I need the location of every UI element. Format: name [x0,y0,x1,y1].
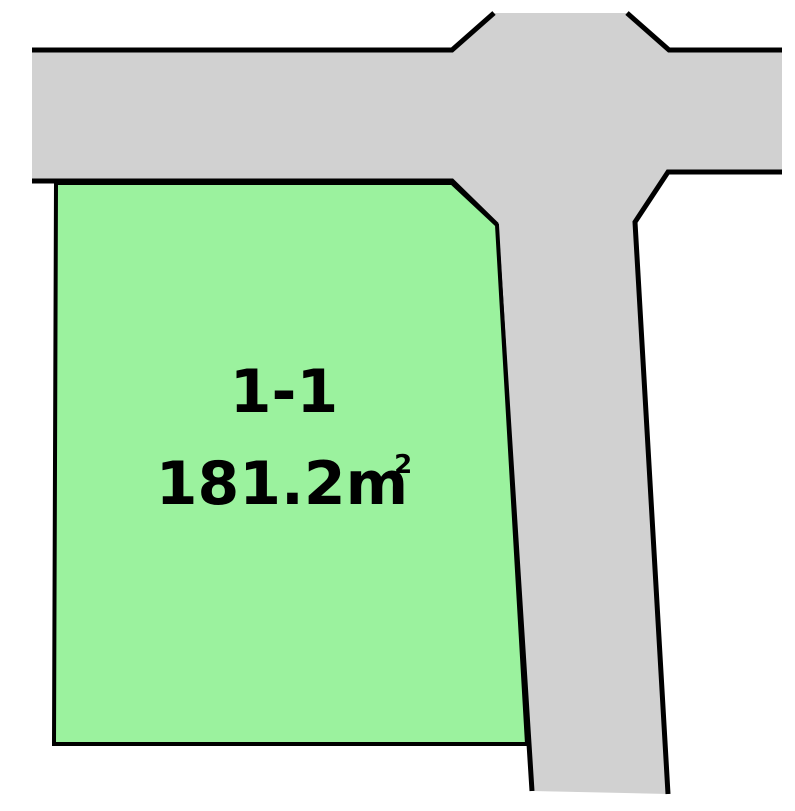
road-edge-top-left [32,13,494,50]
parcel-shape [54,183,527,744]
lot-map-diagram: 1-1 181.2m2 [0,0,795,811]
map-canvas [0,0,795,811]
